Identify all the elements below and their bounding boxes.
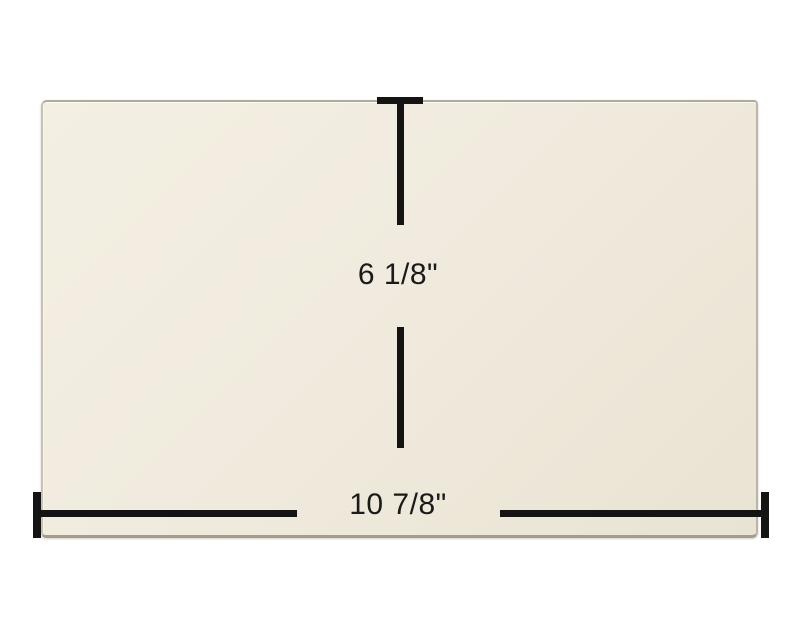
width-dimension-left-tick	[33, 492, 41, 538]
width-dimension-line-right	[500, 510, 761, 517]
width-dimension-label: 10 7/8"	[349, 489, 447, 521]
height-dimension-line-lower	[397, 327, 404, 448]
height-dimension-top-tick	[377, 97, 423, 104]
height-dimension-line-upper	[397, 104, 404, 225]
height-dimension-label: 6 1/8"	[358, 259, 438, 291]
width-dimension-line-left	[41, 510, 297, 517]
width-dimension-right-tick	[761, 492, 769, 538]
product-dimension-diagram: 6 1/8" 10 7/8"	[0, 0, 800, 644]
